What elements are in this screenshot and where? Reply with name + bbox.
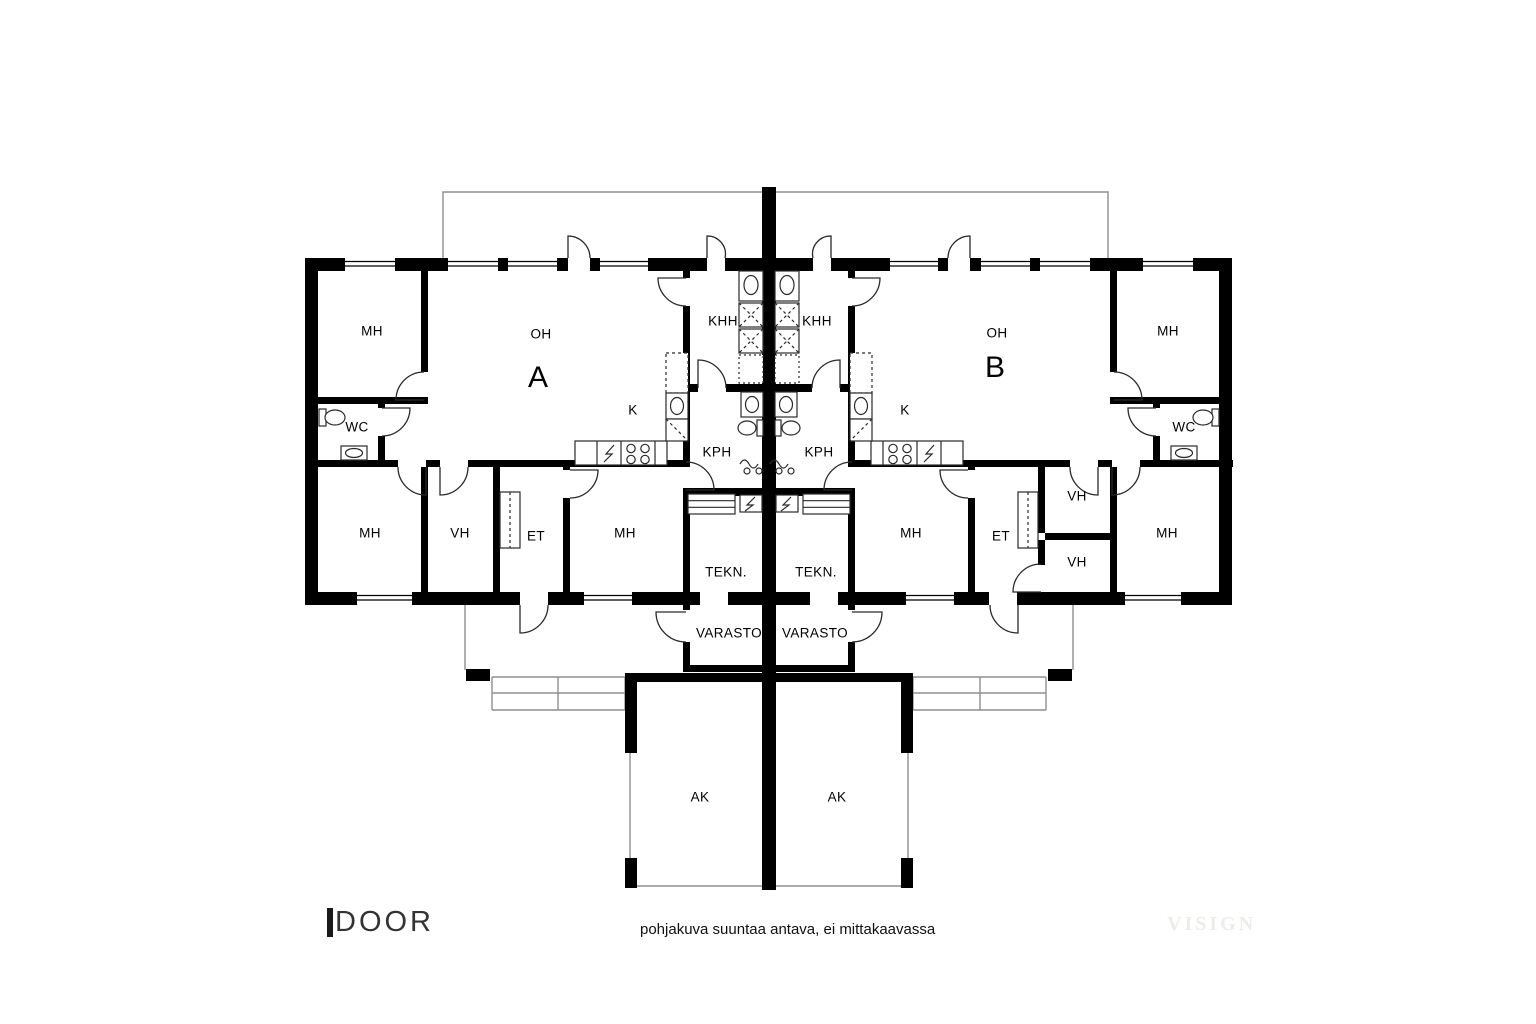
kitchen-counter-a [575,353,688,465]
washing-machine-icon [775,329,799,353]
door-b-khh-inner [812,360,840,388]
electrical-panel-icon [740,495,762,512]
door-b-varasto [852,612,882,642]
sink-icon [775,271,799,301]
disclaimer-text: pohjakuva suuntaa antava, ei mittakaavas… [640,921,935,938]
washing-machine-icon [775,303,799,327]
sink-icon [341,446,367,460]
walls [305,187,1233,890]
door-b-mh3 [940,470,968,498]
cabinet-icon [775,355,799,383]
door-b-terrace [948,236,970,258]
door-a-khh-inner [698,360,726,388]
door-b-kph [824,462,852,490]
door-b-wc [1128,408,1156,436]
floorplan-svg [0,0,1536,1024]
door-b-entry [990,605,1018,633]
right-steps-icon [913,677,1046,710]
kitchen-sink-icon [850,393,872,419]
door-a-entry [520,605,548,633]
page: MHOHAKHHWCKKPHMHVHETMHTEKN.VARASTOAKKHHO… [0,0,1536,1024]
toilet-icon [1193,409,1219,426]
sink-icon [741,392,763,417]
toilet-icon [319,409,345,426]
door-b-vh-lower [1013,564,1041,592]
door-a-khh-out [707,236,725,258]
toilet-icon [775,420,800,436]
door-b-khh-out [813,236,831,258]
visign-watermark: VISIGN [1167,913,1256,936]
door-a-mh1 [396,372,424,400]
left-steps-icon [492,677,625,710]
door-a-terrace [568,236,590,258]
sink-icon [775,392,797,417]
electrical-panel-icon [776,495,798,512]
shelf-icon [803,494,850,514]
door-b-khh-hall [852,278,880,306]
door-a-vh [440,467,468,495]
cabinet-icon [739,355,763,383]
door-logo: DOOR [327,908,434,937]
wardrobe-icon [1018,492,1038,548]
shelf-icon [688,494,735,514]
door-a-kph [686,462,714,490]
sink-icon [739,271,763,301]
party-wall [762,187,776,890]
door-a-mh3 [570,470,598,498]
shower-icon [740,460,762,474]
carport-top-wall [625,673,913,682]
left-exterior-wall [305,258,318,605]
kitchen-counter-b [850,353,963,465]
door-a-khh-hall [658,278,686,306]
washing-machine-icon [739,303,763,327]
kitchen-sink-icon [666,393,688,419]
right-exterior-wall [1219,258,1232,605]
sink-icon [1171,446,1197,460]
door-a-wc [382,408,410,436]
door-a-varasto [656,612,686,642]
toilet-icon [738,420,763,436]
door-b-mh1 [1114,372,1142,400]
wardrobe-icon [500,492,520,548]
door-b-vh-upper [1070,467,1098,495]
washing-machine-icon [739,329,763,353]
